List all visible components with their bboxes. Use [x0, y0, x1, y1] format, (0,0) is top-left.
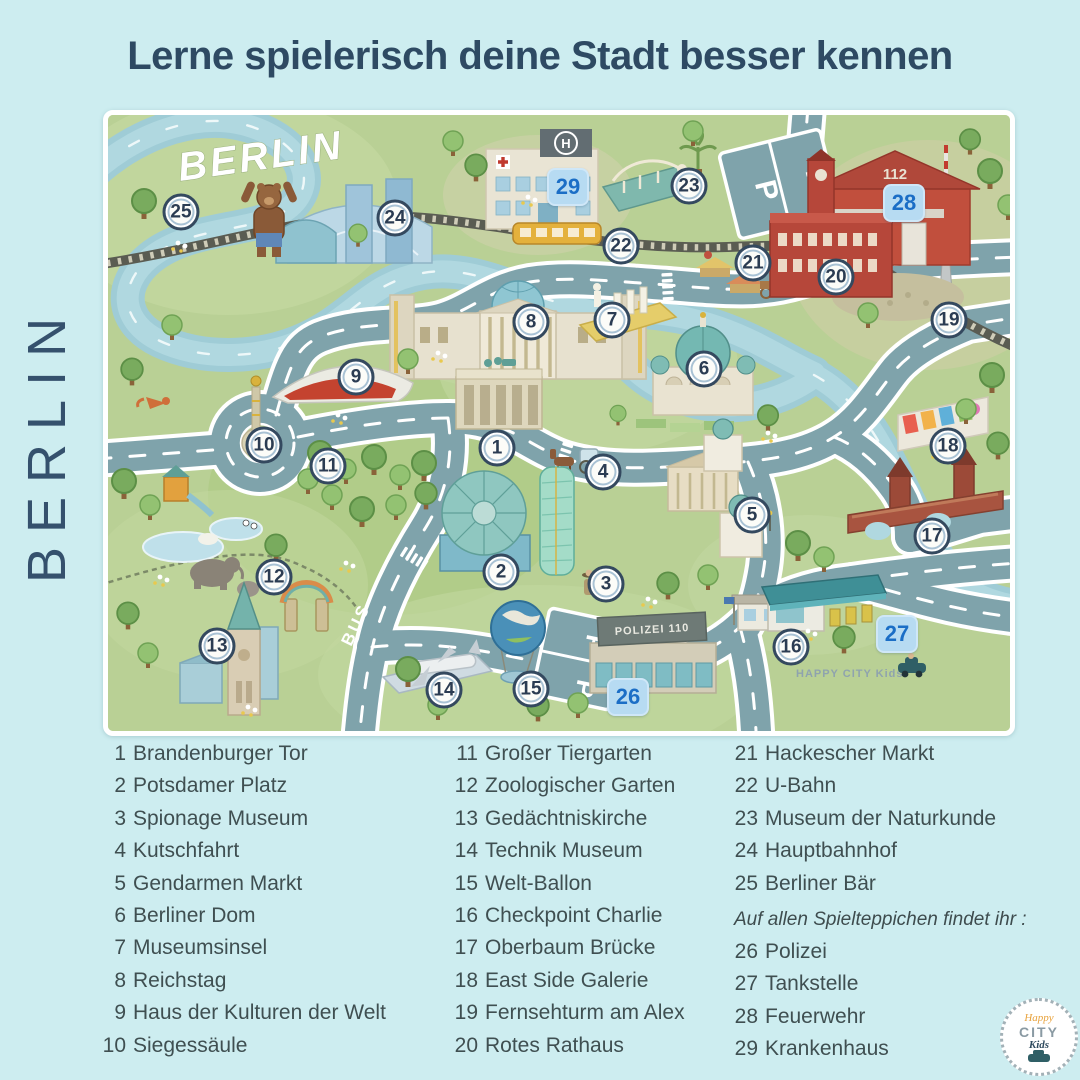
legend-note: Auf allen Spielteppichen findet ihr :: [734, 907, 1032, 933]
map-watermark-text: HAPPY CITY Kids: [796, 668, 904, 680]
legend-item-7: 7Museumsinsel: [100, 932, 440, 964]
legend-item-3: 3Spionage Museum: [100, 803, 440, 835]
legend-item-29: 29Krankenhaus: [732, 1033, 1032, 1065]
legend-column-1: 1Brandenburger Tor2Potsdamer Platz3Spion…: [100, 738, 440, 1062]
legend-item-2: 2Potsdamer Platz: [100, 770, 440, 802]
vertical-city-label: BERLIN: [16, 283, 78, 583]
map-illustration: BUS P P P P: [108, 115, 1010, 731]
legend-item-19: 19Fernsehturm am Alex: [452, 997, 727, 1029]
potsdamer-platz-buildings: [440, 467, 574, 575]
city-map: BUS P P P P: [103, 110, 1015, 736]
legend-item-17: 17Oberbaum Brücke: [452, 932, 727, 964]
legend-item-25: 25Berliner Bär: [732, 868, 1032, 900]
legend-item-9: 9Haus der Kulturen der Welt: [100, 997, 440, 1029]
ubahn-train: [513, 223, 601, 244]
legend-item-20: 20Rotes Rathaus: [452, 1030, 727, 1062]
legend-item-23: 23Museum der Naturkunde: [732, 803, 1032, 835]
polizei-building: POLIZEI 110: [590, 612, 716, 693]
legend-item-27: 27Tankstelle: [732, 968, 1032, 1000]
legend-item-12: 12Zoologischer Garten: [452, 770, 727, 802]
logo-happy: Happy: [1024, 1013, 1053, 1024]
legend-item-16: 16Checkpoint Charlie: [452, 900, 727, 932]
legend-item-28: 28Feuerwehr: [732, 1001, 1032, 1033]
logo-kids: Kids: [1029, 1040, 1049, 1051]
legend-item-1: 1Brandenburger Tor: [100, 738, 440, 770]
legend-item-8: 8Reichstag: [100, 965, 440, 997]
logo-car-icon: [1028, 1054, 1050, 1062]
legend-item-18: 18East Side Galerie: [452, 965, 727, 997]
logo-city: CITY: [1019, 1025, 1059, 1039]
legend-item-24: 24Hauptbahnhof: [732, 835, 1032, 867]
legend-item-15: 15Welt-Ballon: [452, 868, 727, 900]
legend-item-13: 13Gedächtniskirche: [452, 803, 727, 835]
poster-page: Lerne spielerisch deine Stadt besser ken…: [0, 0, 1080, 1080]
happy-city-kids-logo: Happy CITY Kids: [1000, 998, 1078, 1076]
helipad-h-label: H: [561, 136, 570, 151]
legend-column-2: 11Großer Tiergarten12Zoologischer Garten…: [452, 738, 727, 1062]
legend-item-10: 10Siegessäule: [100, 1030, 440, 1062]
legend-item-26: 26Polizei: [732, 936, 1032, 968]
legend-item-5: 5Gendarmen Markt: [100, 868, 440, 900]
legend-item-21: 21Hackescher Markt: [732, 738, 1032, 770]
spionage-spy-figure: [582, 570, 596, 595]
page-title: Lerne spielerisch deine Stadt besser ken…: [0, 34, 1080, 79]
legend-item-4: 4Kutschfahrt: [100, 835, 440, 867]
legend-item-14: 14Technik Museum: [452, 835, 727, 867]
legend-item-11: 11Großer Tiergarten: [452, 738, 727, 770]
legend-column-3: 21Hackescher Markt22U-Bahn23Museum der N…: [732, 738, 1032, 1066]
legend-item-22: 22U-Bahn: [732, 770, 1032, 802]
legend-item-6: 6Berliner Dom: [100, 900, 440, 932]
fire-station-number: 112: [883, 166, 907, 183]
